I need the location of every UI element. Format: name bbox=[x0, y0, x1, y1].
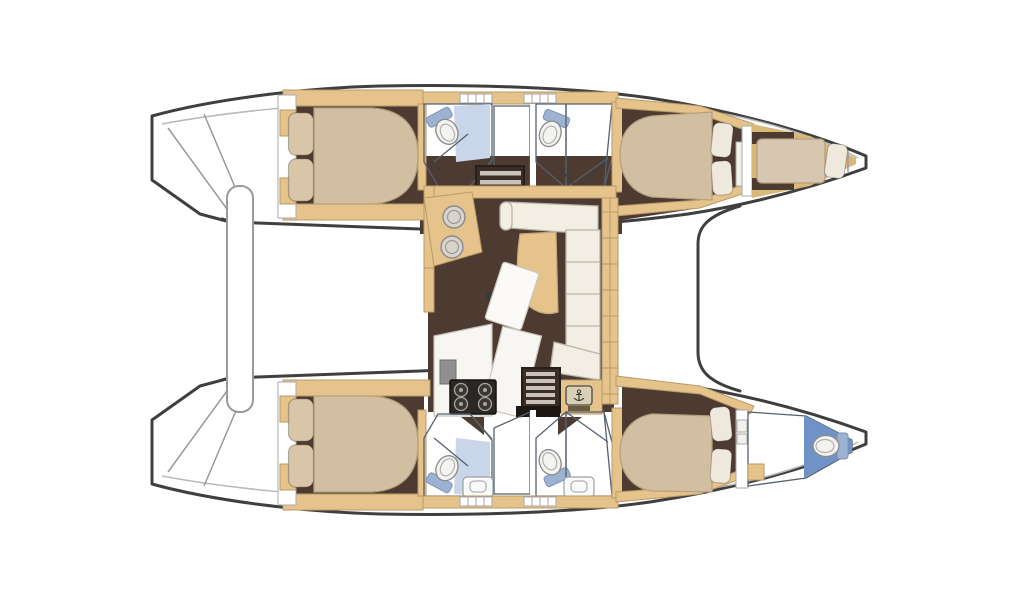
toilet-icon bbox=[813, 433, 848, 459]
bathroom-wall bbox=[530, 410, 536, 496]
badge-base bbox=[568, 406, 590, 411]
shower-spray-icon bbox=[500, 441, 522, 463]
bench bbox=[748, 464, 764, 480]
wardrobe-grid bbox=[602, 198, 618, 404]
galley-shelf bbox=[424, 268, 434, 312]
shower-spray-icon bbox=[773, 439, 795, 461]
cabinet bbox=[737, 434, 747, 444]
headboard-trim bbox=[283, 380, 430, 396]
footboard-trim bbox=[283, 494, 423, 510]
round-sink-icon bbox=[443, 206, 465, 228]
pillow bbox=[710, 448, 732, 483]
single-berth bbox=[757, 139, 825, 183]
sofa bbox=[506, 202, 598, 232]
pillow bbox=[289, 113, 314, 156]
bathroom-footer-trim bbox=[423, 496, 618, 508]
shower-spray-icon bbox=[575, 129, 597, 151]
salon bbox=[424, 186, 618, 418]
pillow bbox=[711, 160, 733, 195]
floor-plan-stage bbox=[0, 0, 1024, 600]
shower-door-panel bbox=[454, 104, 490, 162]
crossbeam bbox=[227, 186, 253, 412]
footboard-trim bbox=[283, 204, 430, 220]
catamaran-floor-plan bbox=[0, 0, 1024, 600]
hatch-window bbox=[524, 94, 556, 103]
forepeak-bulkhead bbox=[742, 126, 752, 196]
round-sink-icon bbox=[441, 236, 463, 258]
pillow bbox=[289, 399, 314, 442]
pillow bbox=[289, 159, 314, 202]
hatch-window bbox=[460, 497, 492, 506]
hatch-window bbox=[524, 497, 556, 506]
nav-cabinet bbox=[556, 380, 602, 414]
bathroom-wall bbox=[530, 104, 536, 190]
vanity-sink bbox=[463, 477, 493, 497]
pillow bbox=[289, 445, 314, 488]
double-bed bbox=[314, 396, 418, 492]
shower-spray-icon bbox=[575, 445, 597, 467]
vanity-sink bbox=[564, 477, 594, 497]
helm-badge-icon bbox=[566, 386, 592, 405]
starboard-stairs bbox=[516, 368, 560, 417]
starboard-aft-cabin bbox=[278, 380, 430, 510]
pillow bbox=[824, 143, 849, 179]
pillow bbox=[709, 406, 732, 442]
double-bed bbox=[314, 108, 418, 204]
port-forepeak-berth bbox=[742, 124, 856, 198]
sofa-armrest bbox=[500, 202, 512, 230]
hatch-window bbox=[460, 94, 492, 103]
shower-spray-icon bbox=[500, 129, 522, 151]
port-aft-cabin bbox=[278, 90, 430, 220]
sofa bbox=[566, 230, 600, 354]
cabinet bbox=[737, 420, 747, 432]
forward-nacelle-bracket bbox=[698, 206, 740, 391]
bathroom-header-trim bbox=[423, 92, 618, 104]
pillow bbox=[710, 122, 733, 158]
stove-icon bbox=[450, 380, 496, 414]
headboard-trim bbox=[283, 90, 423, 106]
double-bed bbox=[620, 414, 712, 492]
cabin-bulkhead bbox=[418, 104, 426, 190]
cabin-bulkhead bbox=[418, 410, 426, 496]
double-bed bbox=[620, 112, 712, 200]
